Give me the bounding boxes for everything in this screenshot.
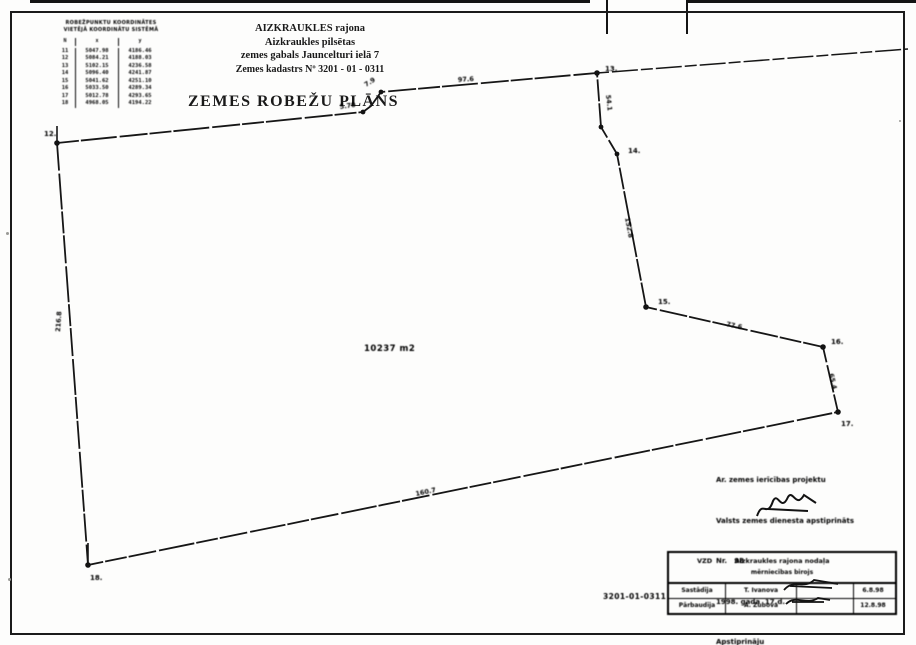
- point-marker: [361, 110, 366, 115]
- distance-label: 7.9: [363, 76, 377, 89]
- distance-label: 5.70: [339, 101, 356, 111]
- distance-label: 97.6: [458, 75, 475, 84]
- org-name: Aizkraukles rajona nodaļa: [669, 557, 895, 565]
- point-label-15: 15.: [658, 298, 670, 306]
- point-marker: [643, 304, 649, 310]
- title-block-signatures: [780, 576, 860, 610]
- scanned-land-plan-page: ROBEŽPUNKTU KOORDINĀTES VIETĒJĀ KOORDINĀ…: [0, 0, 916, 645]
- point-marker: [85, 562, 91, 568]
- approval-line-5: Apstiprināju: [716, 636, 901, 645]
- distance-label: 152.8: [623, 217, 635, 239]
- point-marker: [615, 152, 620, 157]
- point-label-13: 13.: [605, 65, 617, 73]
- point-marker: [594, 70, 600, 76]
- point-marker: [835, 409, 841, 415]
- role-cell: Pārbaudīja: [669, 599, 725, 613]
- org-department: mērniecības birojs: [669, 569, 895, 576]
- role-cell: Sastādīja: [669, 584, 725, 598]
- neighbor-boundary-line: [597, 49, 908, 73]
- distance-label: 65.4: [827, 373, 839, 391]
- point-label-14: 14.: [628, 147, 640, 155]
- approval-line-1: Ar. zemes ierīcības projektu: [716, 474, 901, 488]
- distance-label: 54.1: [604, 94, 614, 111]
- point-label-12: 12.: [44, 130, 56, 138]
- parcel-area-label: 10237 m2: [364, 344, 415, 354]
- distance-label: 77.6: [726, 320, 744, 331]
- approval-signature: [754, 489, 820, 523]
- point-label-16: 16.: [831, 338, 843, 346]
- distance-label: 216.8: [54, 311, 63, 333]
- point-marker: [599, 125, 604, 130]
- point-marker: [379, 90, 384, 95]
- point-label-17: 17.: [841, 420, 853, 428]
- cadastre-code: 3201-01-0311: [603, 592, 666, 601]
- point-marker: [820, 344, 826, 350]
- point-marker: [54, 140, 60, 146]
- approval-note: Ar. zemes ierīcības projektu Valsts zeme…: [716, 447, 901, 645]
- point-label-18: 18.: [90, 574, 102, 582]
